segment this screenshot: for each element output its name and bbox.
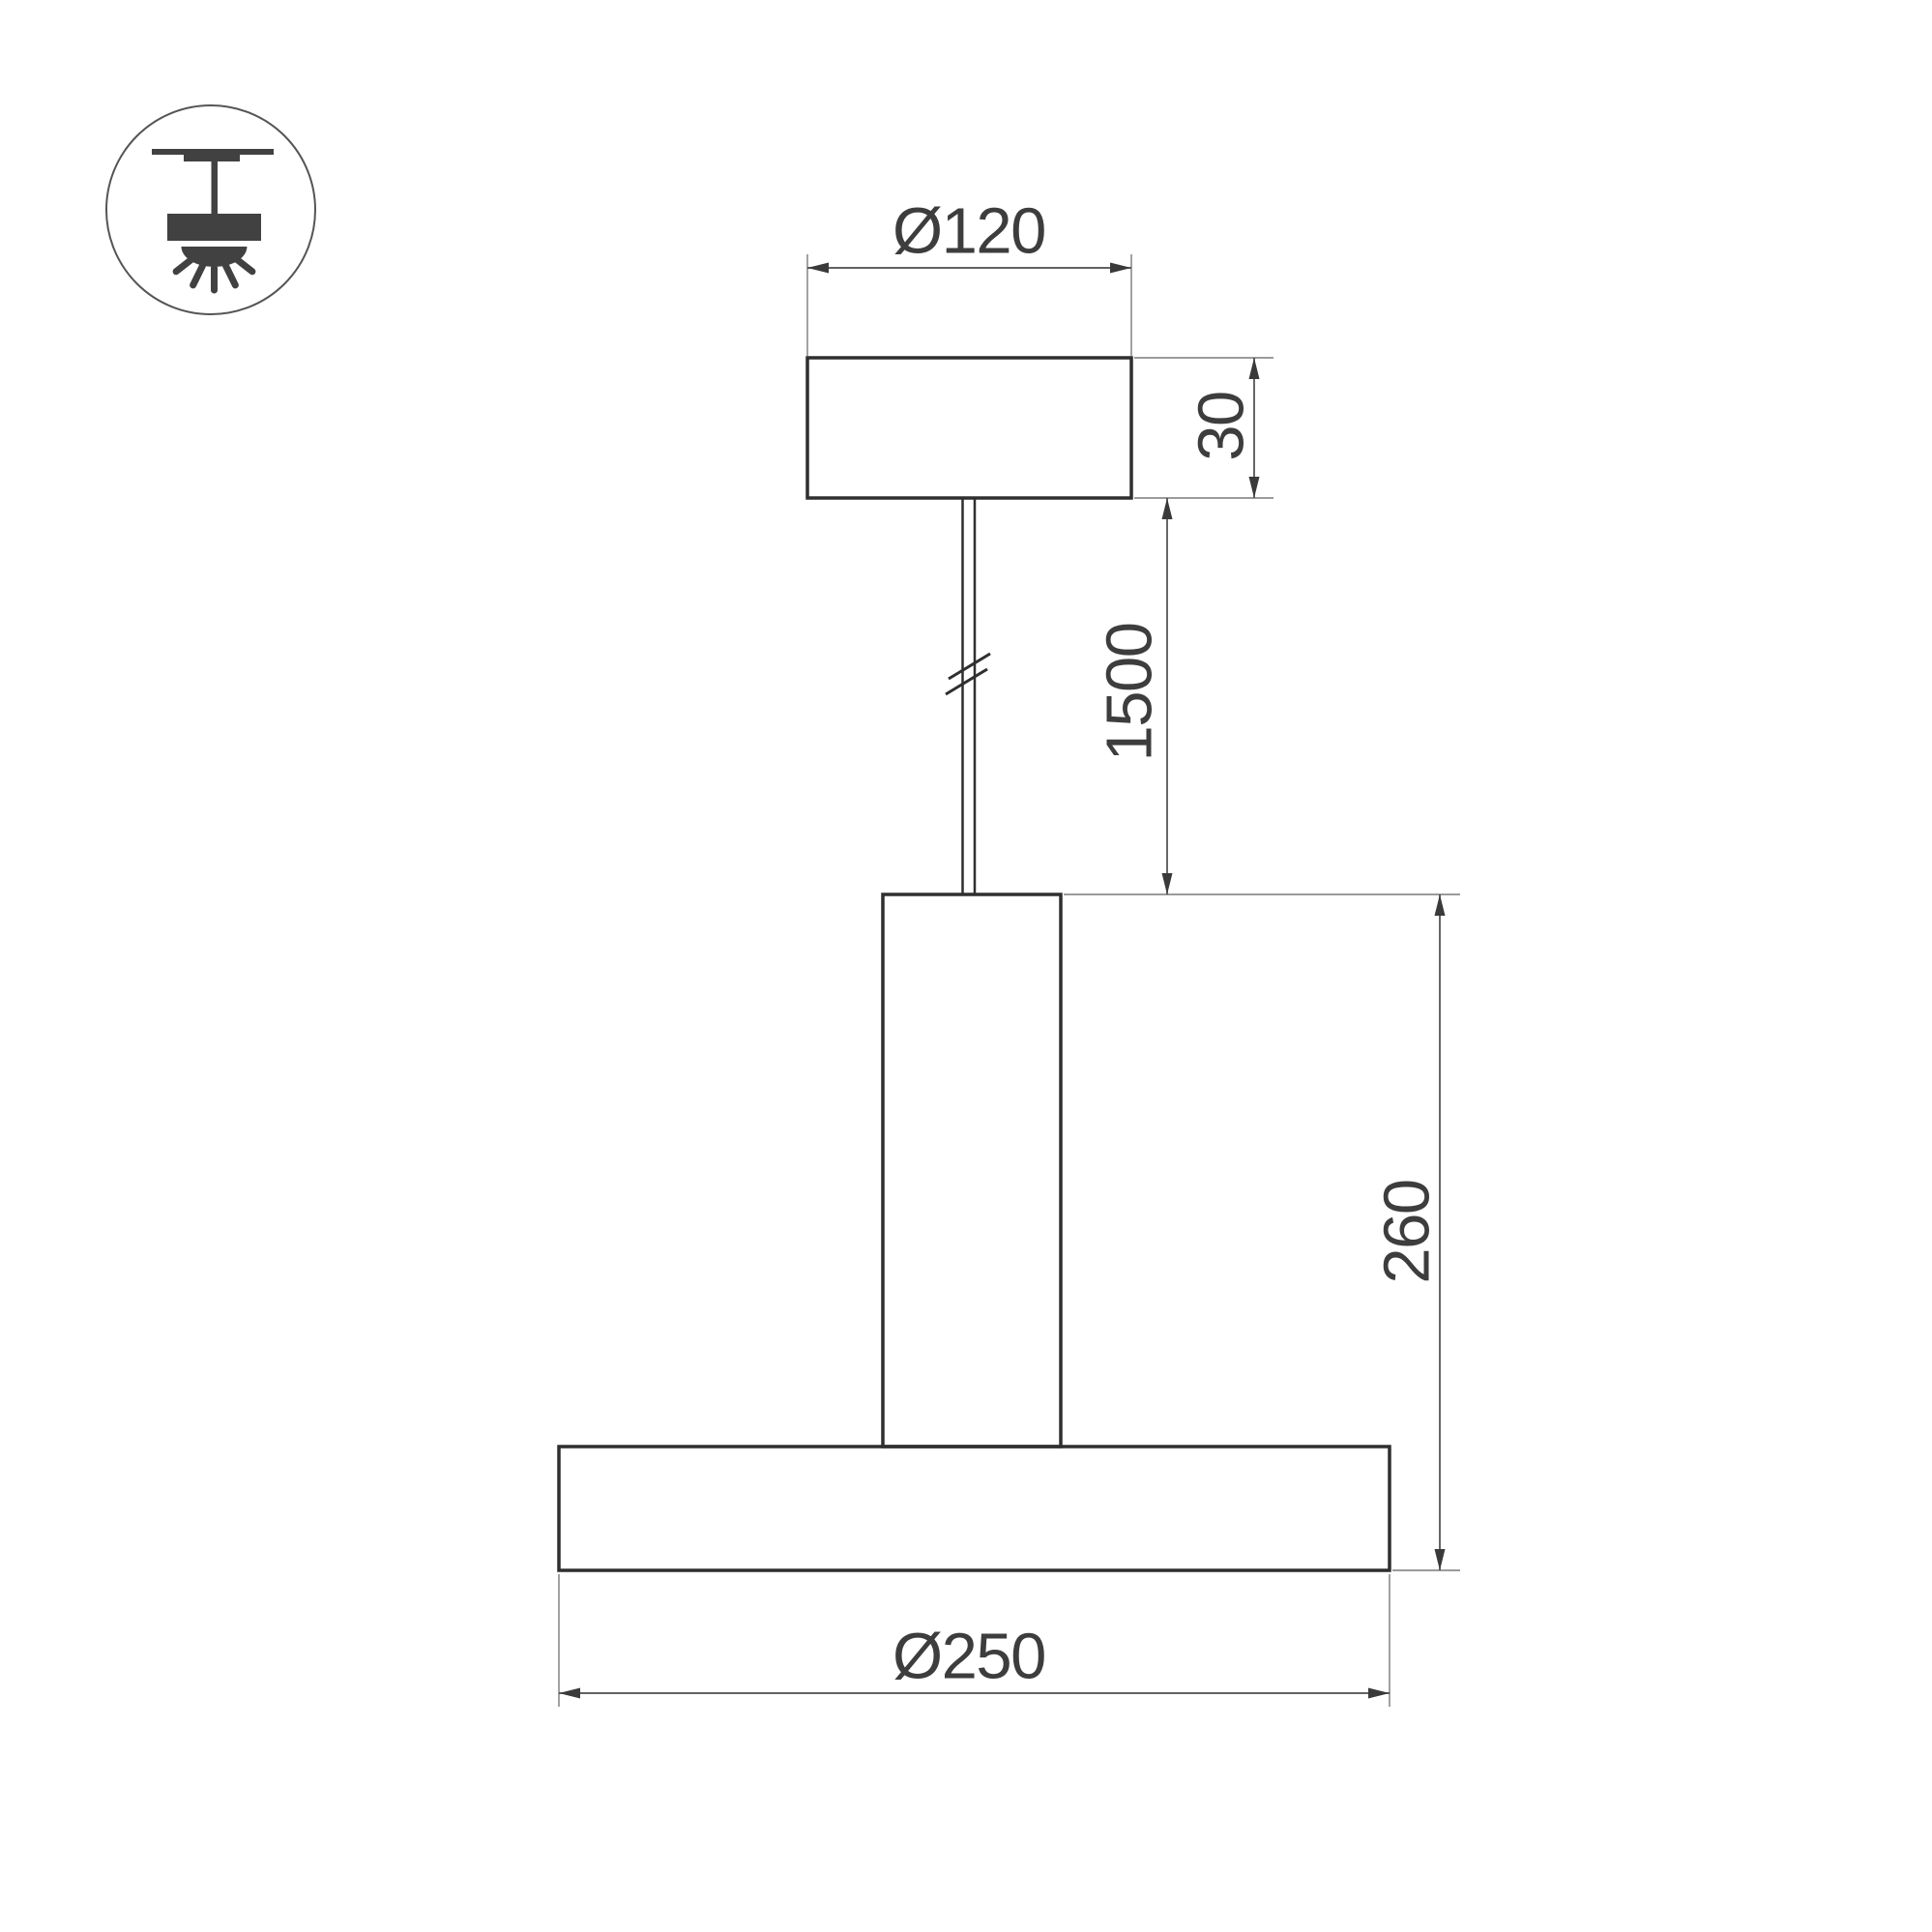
light-ray-icon: [225, 265, 235, 285]
icon-mount-bracket: [184, 153, 240, 161]
body-cylinder-outline: [883, 894, 1061, 1447]
arrow-left-icon: [559, 1688, 580, 1699]
arrow-down-icon: [1162, 873, 1173, 894]
dimension-fixture-height: 260: [1371, 894, 1461, 1570]
dimension-label: 260: [1371, 1180, 1444, 1283]
dimension-label: Ø250: [893, 1621, 1045, 1693]
light-ray-icon: [176, 258, 193, 272]
arrow-down-icon: [1435, 1549, 1446, 1570]
arrow-up-icon: [1162, 498, 1173, 519]
technical-drawing-canvas: Ø120 30 1500 260 Ø250: [0, 0, 1932, 1932]
dimension-label: 1500: [1094, 623, 1166, 761]
arrow-right-icon: [1368, 1688, 1390, 1699]
dimension-canopy-diameter: Ø120: [807, 195, 1131, 357]
light-ray-icon: [193, 265, 203, 285]
dimension-label: Ø120: [893, 195, 1045, 268]
arrow-up-icon: [1249, 358, 1260, 379]
wire-break-mark: [946, 669, 987, 694]
luminaire-outline: [559, 358, 1390, 1570]
mount-type-legend: [106, 105, 315, 314]
arrow-down-icon: [1249, 477, 1260, 498]
icon-lamp-body: [167, 214, 261, 241]
icon-suspension-rod: [212, 161, 219, 215]
pendant-suspension-mount-icon: [152, 149, 274, 290]
shade-disc-outline: [559, 1447, 1390, 1570]
wire-break-mark: [949, 654, 990, 679]
arrow-left-icon: [807, 263, 829, 274]
dimension-suspension-length: 1500: [1064, 498, 1460, 894]
light-ray-icon: [235, 258, 252, 272]
dimension-label: 30: [1186, 392, 1258, 461]
arrow-right-icon: [1110, 263, 1131, 274]
arrow-up-icon: [1435, 894, 1446, 916]
dimension-shade-diameter: Ø250: [559, 1574, 1390, 1707]
dimension-canopy-height: 30: [1134, 358, 1273, 498]
canopy-outline: [807, 358, 1131, 498]
